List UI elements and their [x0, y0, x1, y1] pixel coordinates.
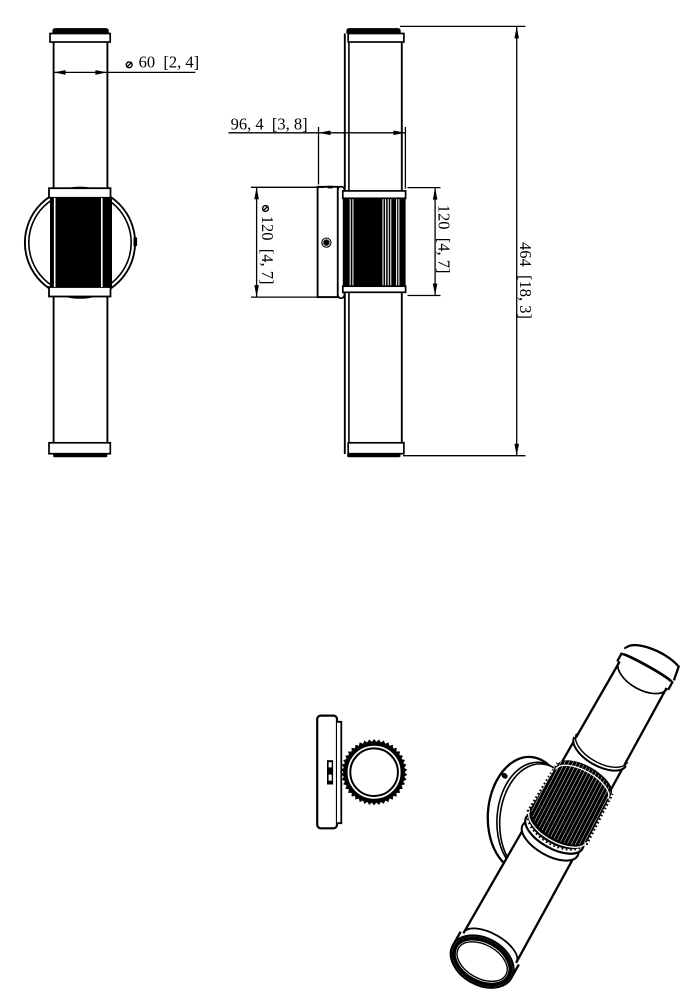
svg-text:96, 4 [3, 8]: 96, 4 [3, 8]: [231, 114, 308, 133]
svg-text:60 [2, 4]: 60 [2, 4]: [139, 53, 200, 72]
svg-text:464 [18, 3]: 464 [18, 3]: [516, 242, 535, 319]
svg-text:120 [4, 7]: 120 [4, 7]: [434, 205, 453, 274]
svg-text:120 [4, 7]: 120 [4, 7]: [258, 216, 277, 285]
